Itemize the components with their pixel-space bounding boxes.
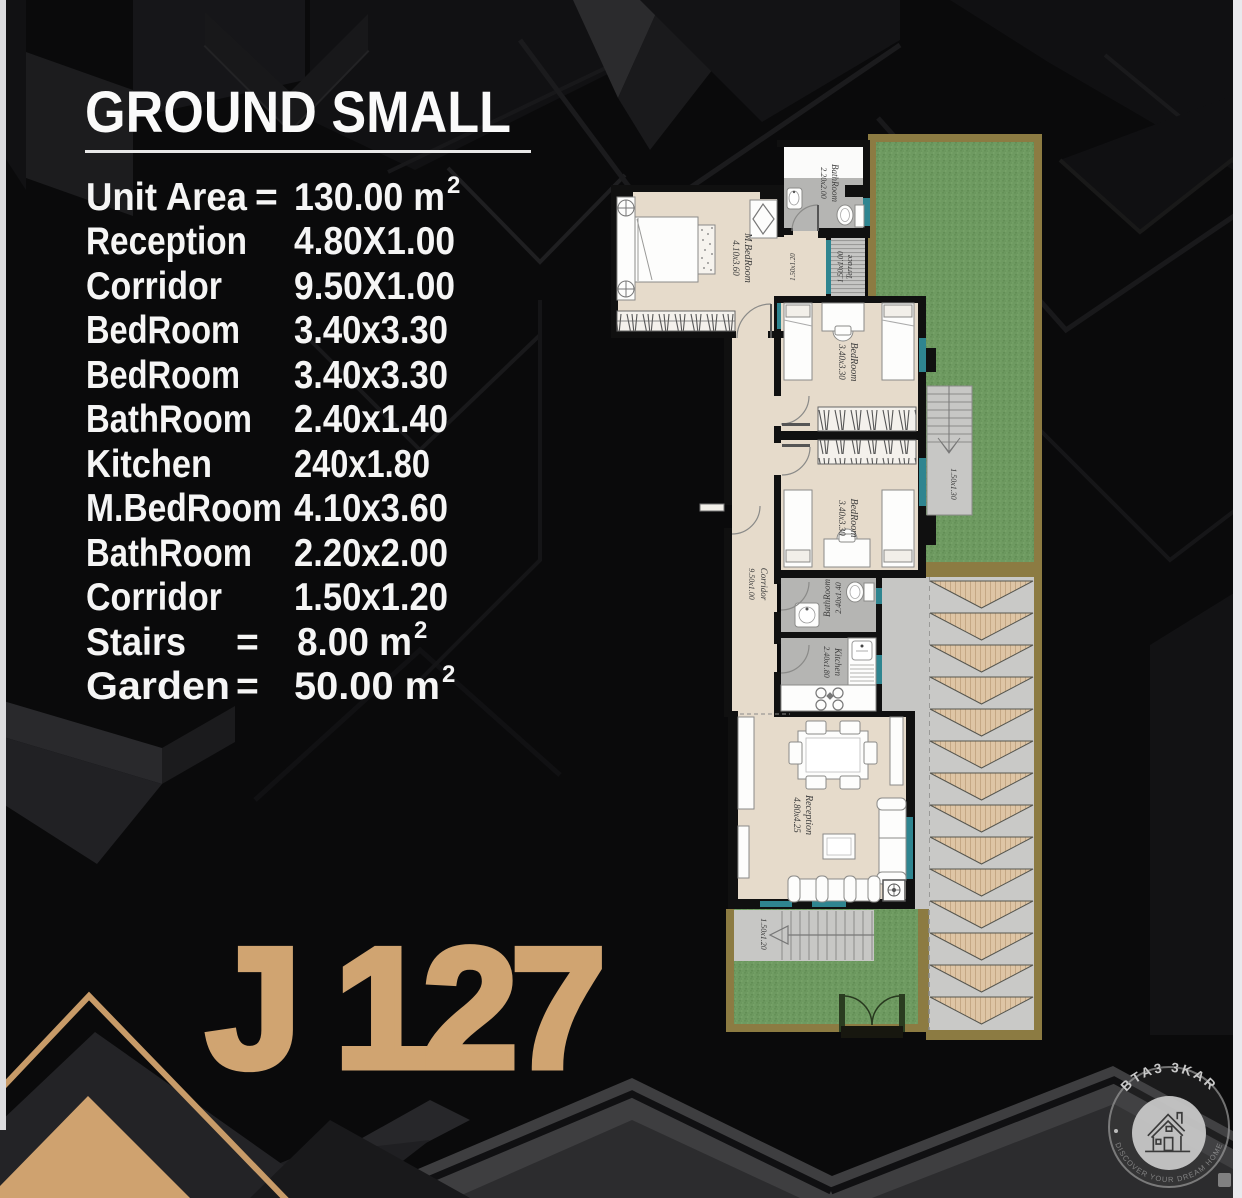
svg-text:Corridor: Corridor [86,265,222,308]
svg-text:130.00 m: 130.00 m [294,176,445,219]
svg-text:Corridor: Corridor [86,576,222,619]
svg-text:2.40x1.40: 2.40x1.40 [834,582,843,614]
svg-text:2: 2 [414,617,427,644]
svg-text:M.BedRoom: M.BedRoom [742,232,753,283]
svg-text:1.50x1.20: 1.50x1.20 [759,918,768,950]
svg-text:GROUND SMALL: GROUND SMALL [85,80,511,145]
svg-text:50.00 m: 50.00 m [294,665,440,708]
svg-text:BathRoom: BathRoom [86,532,252,575]
svg-text:2.20x2.00: 2.20x2.00 [294,532,448,575]
svg-text:4.80x4.25: 4.80x4.25 [792,797,802,833]
svg-text:Corridor: Corridor [759,568,769,601]
svg-text:9.50X1.00: 9.50X1.00 [294,265,455,308]
svg-text:2.20x2.00: 2.20x2.00 [819,167,828,199]
svg-text:BathRoom: BathRoom [830,164,840,202]
svg-text:1.50x1.30: 1.50x1.30 [949,468,958,500]
svg-text:8.00 m: 8.00 m [297,621,412,664]
svg-text:240x1.80: 240x1.80 [294,443,430,486]
svg-text:M.BedRoom: M.BedRoom [86,487,282,530]
svg-text:3.40x3.30: 3.40x3.30 [294,354,448,397]
svg-text:Unit Area: Unit Area [86,176,247,219]
svg-text:=: = [255,176,278,219]
svg-text:2: 2 [442,661,455,688]
svg-text:BedRoom: BedRoom [848,343,859,382]
svg-text:4.10x3.60: 4.10x3.60 [731,240,741,276]
svg-text:2.40x1.40: 2.40x1.40 [294,398,448,441]
svg-text:1.50x1.20: 1.50x1.20 [789,253,797,281]
svg-text:=: = [236,665,259,708]
svg-text:9.50x1.00: 9.50x1.00 [747,568,756,600]
svg-text:Garden: Garden [86,665,230,708]
svg-text:BedRoom: BedRoom [86,309,240,352]
svg-text:Reception: Reception [803,794,814,835]
svg-text:4.80X1.00: 4.80X1.00 [294,220,455,263]
svg-text:BathRoom: BathRoom [86,398,252,441]
svg-text:=: = [236,621,259,664]
svg-text:1.50x1.00: 1.50x1.00 [836,251,845,283]
svg-text:3.40x3.30: 3.40x3.30 [837,499,847,536]
svg-text:2.40x1.80: 2.40x1.80 [822,646,831,678]
svg-text:3.40x3.30: 3.40x3.30 [837,343,847,380]
svg-text:BathRoom: BathRoom [822,579,832,617]
svg-text:Stairs: Stairs [86,621,186,664]
svg-text:J 127: J 127 [206,913,599,1104]
svg-text:1.50x1.20: 1.50x1.20 [294,576,448,619]
svg-text:2: 2 [447,172,460,199]
svg-text:BedRoom: BedRoom [848,499,859,538]
svg-text:Terrace: Terrace [845,254,854,279]
svg-text:Kitchen: Kitchen [833,647,843,676]
svg-text:4.10x3.60: 4.10x3.60 [294,487,448,530]
svg-text:Reception: Reception [86,220,247,263]
svg-text:Kitchen: Kitchen [86,443,212,486]
svg-text:BedRoom: BedRoom [86,354,240,397]
svg-text:3.40x3.30: 3.40x3.30 [294,309,448,352]
